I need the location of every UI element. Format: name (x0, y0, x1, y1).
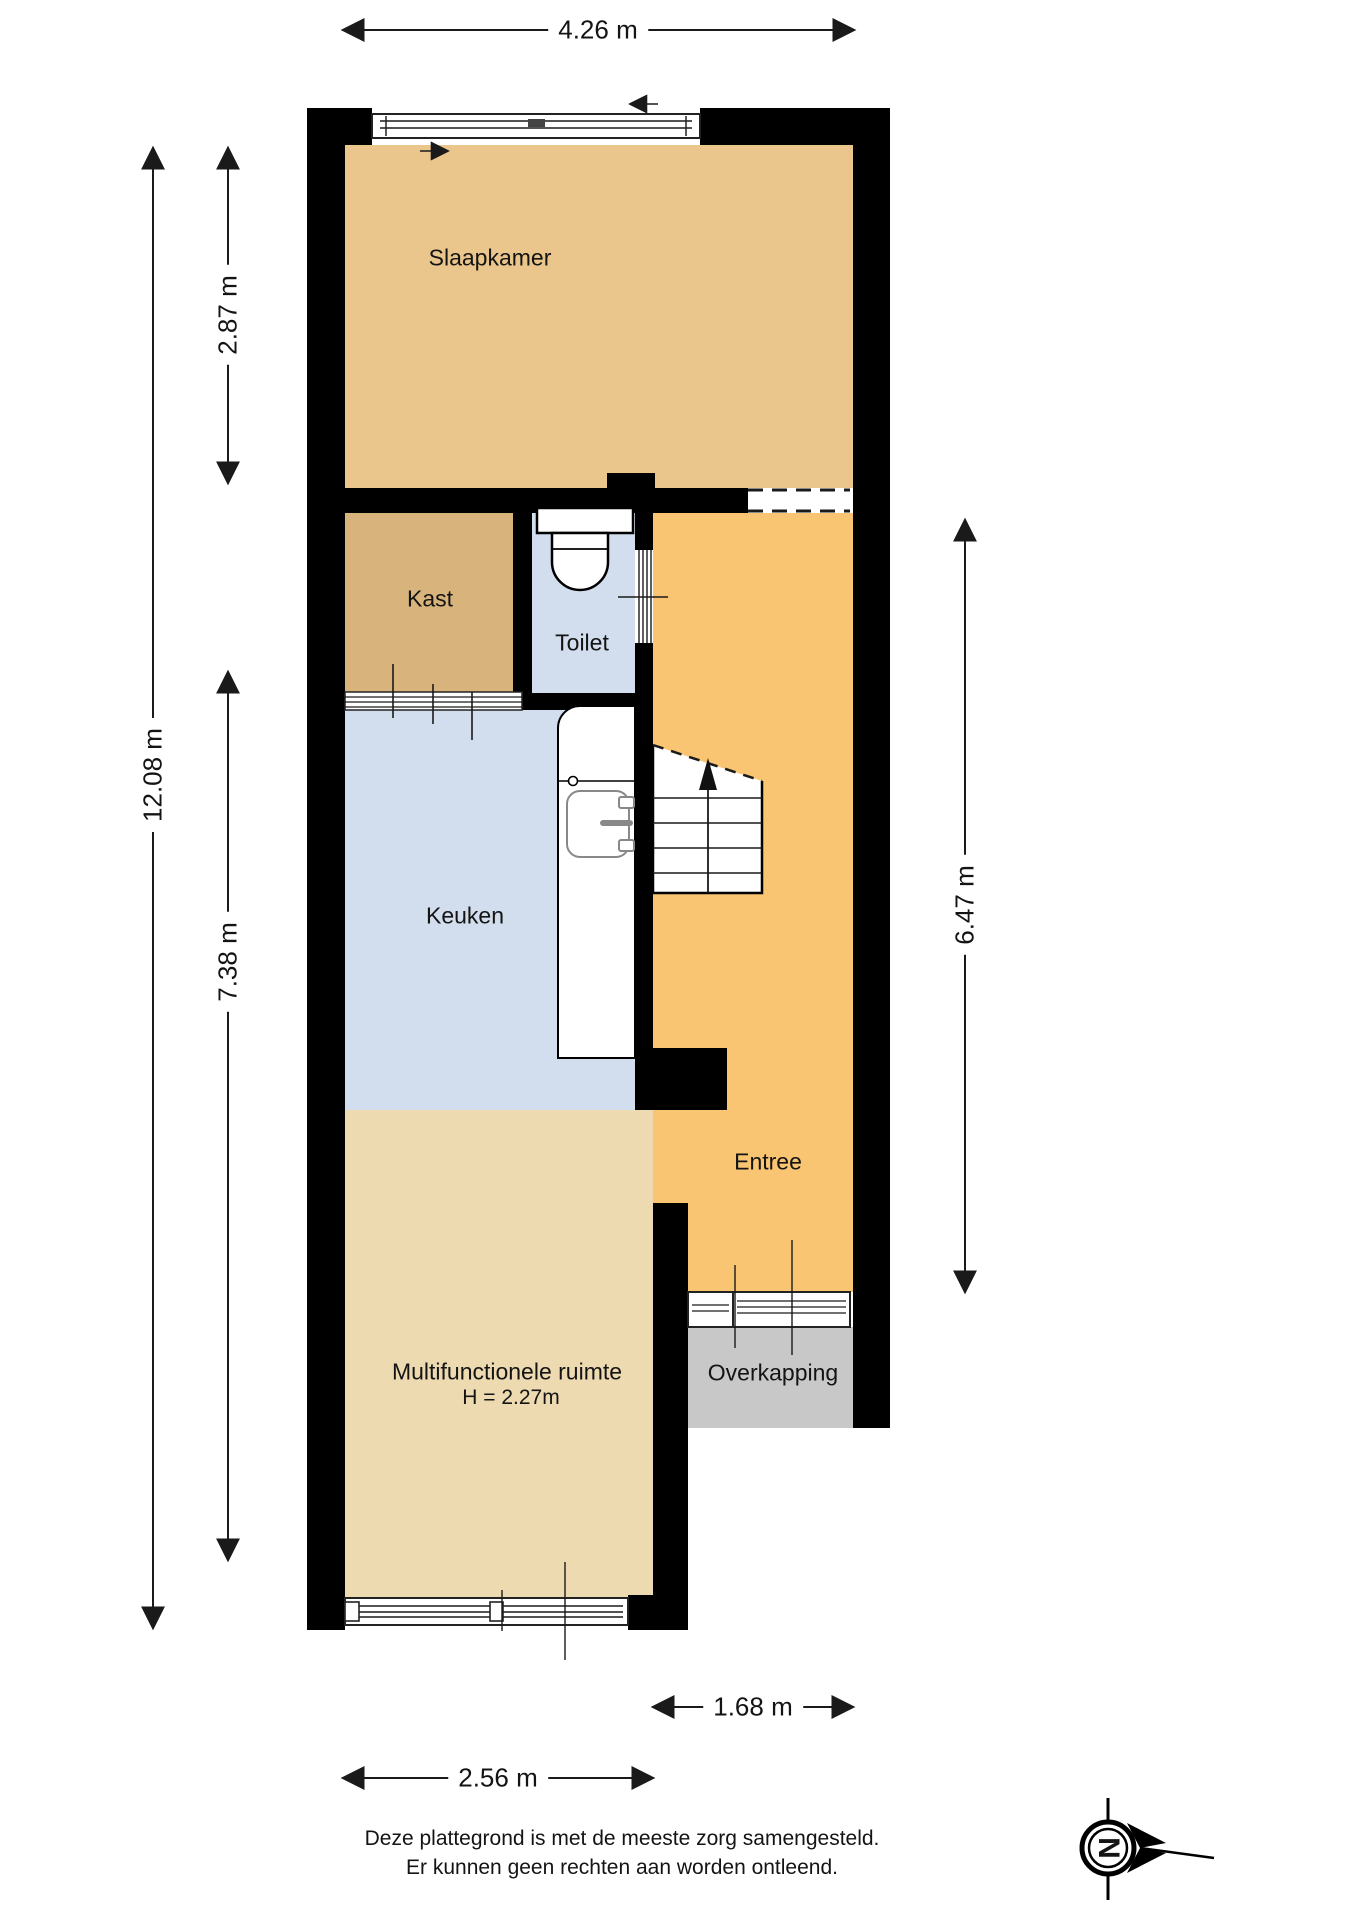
disclaimer: Deze plattegrond is met de meeste zorg s… (365, 1824, 880, 1882)
label-entree: Entree (734, 1149, 802, 1176)
label-multifunctionele-ruimte: Multifunctionele ruimte (392, 1359, 622, 1386)
label-multifunctionele-ruimte-height: H = 2.27m (462, 1386, 559, 1410)
floor-plan: Slaapkamer Kast Toilet Keuken Entree Mul… (0, 0, 1358, 1920)
kast-opening (345, 664, 522, 740)
plan-linework (0, 0, 1358, 1920)
top-window (372, 108, 700, 145)
label-toilet: Toilet (555, 630, 609, 657)
bottom-window (345, 1562, 628, 1660)
stairs (653, 745, 762, 893)
label-overkapping: Overkapping (708, 1360, 838, 1387)
compass-north-label: N (1091, 1837, 1125, 1859)
dim-left-upper: 2.87 m (213, 265, 244, 365)
sink (567, 791, 634, 857)
dim-left-total: 12.08 m (138, 718, 169, 832)
label-kast: Kast (407, 586, 453, 613)
label-slaapkamer: Slaapkamer (429, 245, 552, 272)
dim-bottom-right: 1.68 m (703, 1692, 803, 1723)
kitchen-counter (558, 706, 635, 1058)
open-connection-dashed (748, 488, 850, 513)
dim-right-height: 6.47 m (950, 855, 981, 955)
dim-bottom-left: 2.56 m (448, 1763, 548, 1794)
label-keuken: Keuken (426, 903, 504, 930)
disclaimer-line-1: Deze plattegrond is met de meeste zorg s… (365, 1824, 880, 1853)
disclaimer-line-2: Er kunnen geen rechten aan worden ontlee… (365, 1853, 880, 1882)
dim-top-width: 4.26 m (548, 15, 648, 46)
dim-left-lower: 7.38 m (213, 912, 244, 1012)
entrance-door (688, 1240, 850, 1355)
toilet-door (618, 550, 668, 643)
toilet-fixture (537, 508, 633, 590)
